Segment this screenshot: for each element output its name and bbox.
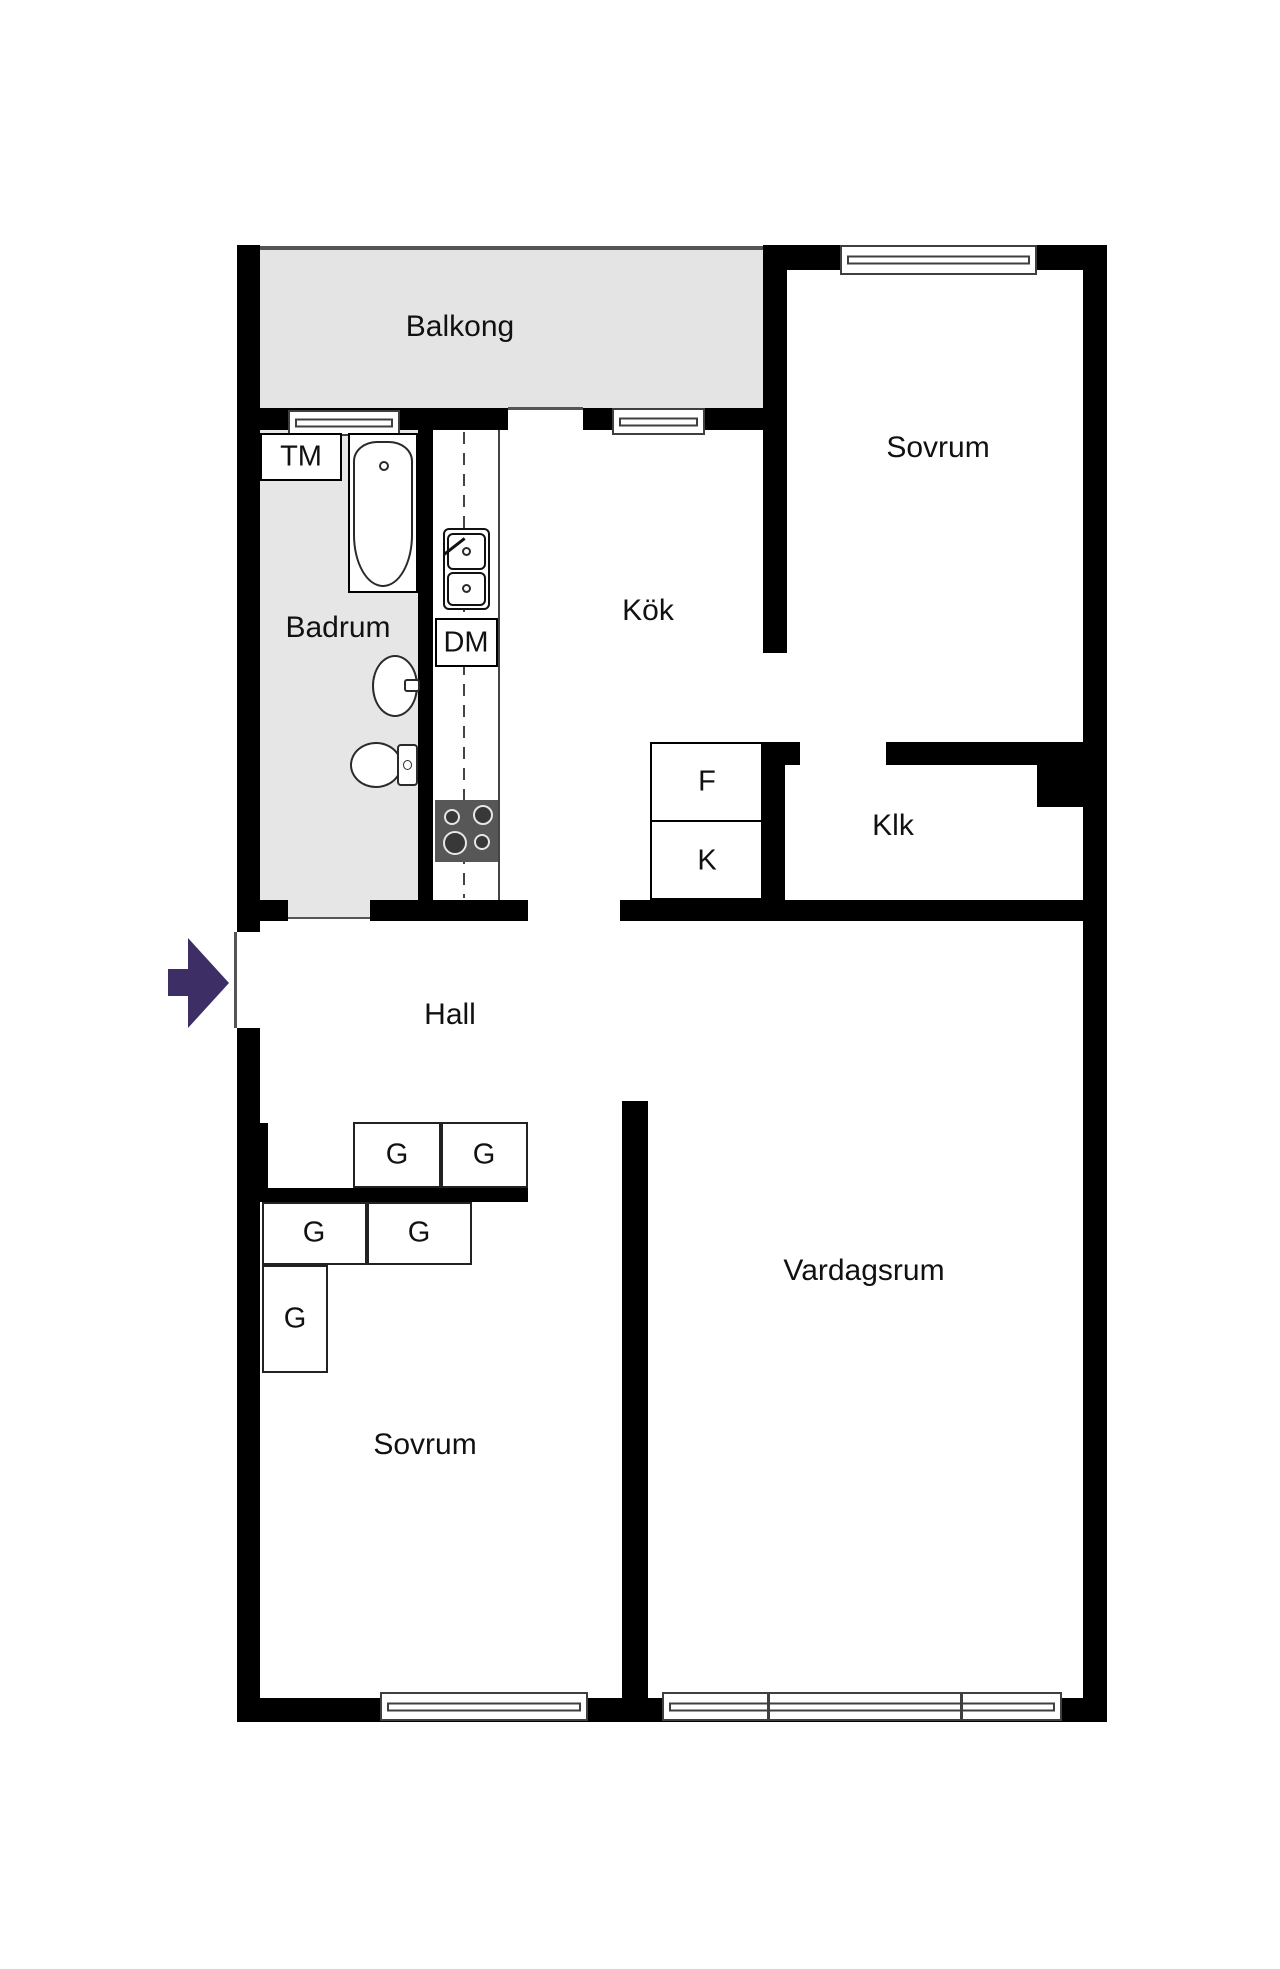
bathroom-door-sill bbox=[288, 900, 370, 919]
stove-burner bbox=[473, 805, 493, 825]
wall-bathroom-right bbox=[418, 430, 433, 900]
wall-left-upper bbox=[237, 245, 260, 932]
balcony-railing-line bbox=[258, 246, 763, 250]
wall-hall-bedroom bbox=[260, 1188, 528, 1202]
kitchen-sink-drain-top bbox=[462, 547, 471, 556]
dishwasher-label: DM bbox=[443, 629, 488, 658]
wall-living-left bbox=[622, 1101, 648, 1722]
toilet-bowl bbox=[350, 742, 402, 788]
wall-mid-2 bbox=[370, 900, 528, 921]
stove bbox=[435, 800, 498, 862]
kitchen-counter-edge bbox=[498, 430, 500, 900]
wardrobe-label: G bbox=[473, 1141, 496, 1170]
window-glass-band bbox=[619, 417, 698, 426]
kitchen-label: Kök bbox=[622, 596, 674, 626]
stove-burner bbox=[443, 831, 467, 855]
bathroom-sink-tap bbox=[404, 679, 420, 692]
freezer-label: F bbox=[698, 768, 716, 797]
living-room-window bbox=[662, 1692, 1062, 1721]
wall-balcony-bottom-2 bbox=[583, 408, 612, 430]
bathroom-label: Badrum bbox=[285, 613, 390, 643]
bedroom-bottom-window bbox=[380, 1692, 588, 1721]
wall-left-lower bbox=[237, 1028, 260, 1722]
wall-mid-1 bbox=[260, 900, 288, 921]
wardrobe-label: G bbox=[303, 1219, 326, 1248]
bedroom-top-window bbox=[840, 245, 1037, 275]
toilet-flush-button bbox=[403, 760, 412, 770]
wardrobe-label: G bbox=[284, 1305, 307, 1334]
wall-hall-notch bbox=[260, 1123, 268, 1188]
window-mullion bbox=[767, 1692, 770, 1721]
balcony-label: Balkong bbox=[406, 312, 514, 342]
window-glass-band bbox=[847, 256, 1030, 265]
wardrobe-label: G bbox=[408, 1219, 431, 1248]
balcony-door-threshold-line bbox=[508, 407, 583, 410]
floor-plan: Balkong Sovrum Kök Badrum Klk Hall Varda… bbox=[0, 0, 1280, 1969]
entrance-threshold-line bbox=[234, 932, 237, 1028]
wall-right bbox=[1083, 270, 1107, 1722]
window-mullion bbox=[960, 1692, 963, 1721]
kitchen-sink-drain-bottom bbox=[462, 584, 471, 593]
window-glass-band bbox=[387, 1702, 581, 1711]
bathtub-drain bbox=[379, 461, 389, 471]
stove-burner bbox=[444, 809, 460, 825]
kitchen-window bbox=[612, 408, 705, 435]
bedroom-top-label: Sovrum bbox=[886, 433, 989, 463]
fridge-label: K bbox=[697, 847, 716, 876]
stove-burner bbox=[474, 834, 490, 850]
wall-closet-top bbox=[886, 742, 1083, 765]
wall-bedroom-top-left bbox=[763, 245, 787, 653]
living-room-label: Vardagsrum bbox=[783, 1256, 944, 1286]
wall-mid-3 bbox=[620, 900, 1083, 921]
washing-machine-label: TM bbox=[280, 443, 322, 472]
wall-fk bbox=[763, 742, 785, 921]
window-glass-band bbox=[669, 1702, 1055, 1711]
wardrobe-label: G bbox=[386, 1141, 409, 1170]
wall-closet-stub bbox=[763, 742, 800, 765]
window-glass-band bbox=[295, 419, 393, 428]
closet-label: Klk bbox=[872, 811, 914, 841]
hall-label: Hall bbox=[424, 1000, 476, 1030]
shaft-block bbox=[1037, 765, 1083, 807]
entrance-arrow-icon bbox=[165, 935, 233, 1031]
bedroom-bottom-label: Sovrum bbox=[373, 1430, 476, 1460]
